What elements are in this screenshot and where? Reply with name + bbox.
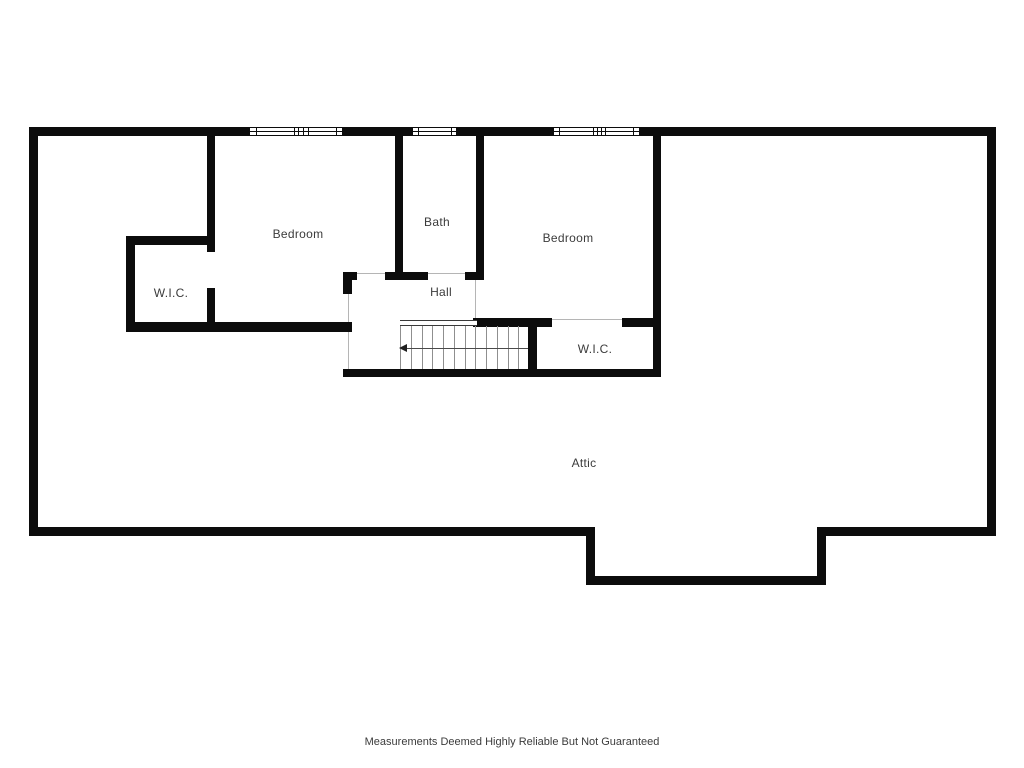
- room-label-wic-right: W.I.C.: [578, 342, 612, 356]
- room-label-hall: Hall: [430, 285, 452, 299]
- window-tick: [593, 128, 594, 135]
- window-divider: [303, 128, 304, 135]
- window-midline: [413, 131, 456, 132]
- room-label-bedroom-right: Bedroom: [543, 231, 594, 245]
- window-tick: [605, 128, 606, 135]
- window-tick: [451, 128, 452, 135]
- wall-hall-top-c: [465, 272, 484, 280]
- door-opening-bedroom-right: [475, 280, 476, 318]
- stair-direction-arrow-icon: [399, 344, 407, 352]
- door-opening-bath: [428, 273, 465, 274]
- window-bedroom-left: [249, 127, 343, 136]
- disclaimer-text: Measurements Deemed Highly Reliable But …: [0, 736, 1024, 748]
- window-bath: [412, 127, 457, 136]
- window-tick: [294, 128, 295, 135]
- room-label-attic: Attic: [572, 456, 597, 470]
- wall-bath-left: [395, 136, 403, 280]
- window-tick: [633, 128, 634, 135]
- window-divider: [597, 128, 598, 135]
- wall-bedroom-left-upper: [207, 136, 215, 252]
- wall-outer-top: [29, 127, 996, 136]
- wall-stair-right: [528, 326, 537, 369]
- wall-outer-right: [987, 127, 996, 536]
- wall-hall-bottom: [343, 369, 661, 377]
- window-tick: [336, 128, 337, 135]
- window-bedroom-right: [553, 127, 640, 136]
- wall-wic-left-side: [126, 236, 135, 332]
- door-opening-hall-left-lower: [348, 332, 349, 369]
- wall-wic-left-top: [126, 236, 207, 245]
- window-tick: [256, 128, 257, 135]
- wall-outer-bottom-right: [817, 527, 996, 536]
- wall-hall-top-b: [385, 272, 428, 280]
- wall-outer-bottom-left: [29, 527, 595, 536]
- window-divider: [298, 128, 299, 135]
- floor-plan: Bedroom Bath Bedroom W.I.C. Hall W.I.C. …: [0, 0, 1024, 768]
- window-tick: [308, 128, 309, 135]
- wall-bedroom-bottom: [126, 322, 352, 332]
- room-label-wic-left: W.I.C.: [154, 286, 188, 300]
- wall-notch-bottom: [586, 576, 826, 585]
- window-midline: [250, 131, 342, 132]
- window-divider: [601, 128, 602, 135]
- window-tick: [418, 128, 419, 135]
- window-tick: [559, 128, 560, 135]
- stair-run-line: [405, 348, 528, 349]
- wall-outer-left: [29, 127, 38, 536]
- wall-hall-left-upper: [343, 272, 352, 294]
- door-opening-bedroom-to-hall-top: [357, 273, 385, 274]
- wall-bedroom-right-side: [653, 136, 661, 377]
- door-opening-hall-left-upper: [348, 294, 349, 322]
- wall-bath-right: [476, 136, 484, 280]
- room-label-bedroom-left: Bedroom: [273, 227, 324, 241]
- door-opening-wic-right: [552, 319, 622, 320]
- room-label-bath: Bath: [424, 215, 450, 229]
